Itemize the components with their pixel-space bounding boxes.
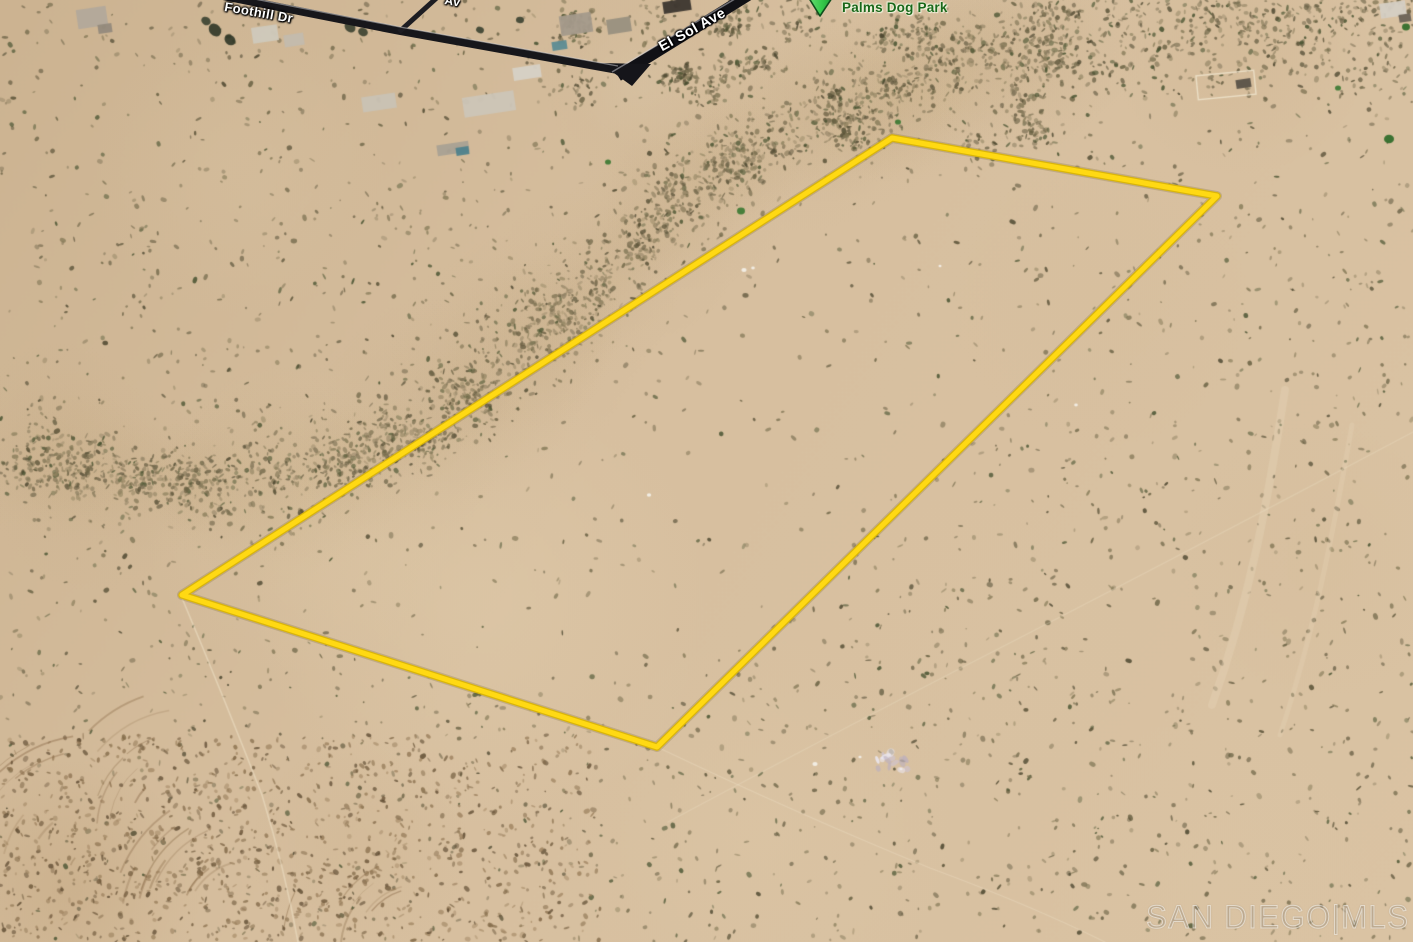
parcel-outline-shadow	[182, 138, 1217, 747]
map-viewport[interactable]: Foothill Dr Av El Sol Ave Palms Dog Park…	[0, 0, 1413, 942]
park-label[interactable]: Palms Dog Park	[842, 0, 948, 15]
parcel-outline-edge	[182, 138, 1217, 747]
mls-watermark: SAN DIEGO|MLS	[1146, 899, 1409, 936]
map-overlay	[0, 0, 1413, 942]
road-junction	[600, 63, 651, 86]
parcel-outline[interactable]	[182, 138, 1217, 747]
road-side-street	[399, 0, 441, 32]
park-marker-icon[interactable]	[807, 0, 834, 16]
